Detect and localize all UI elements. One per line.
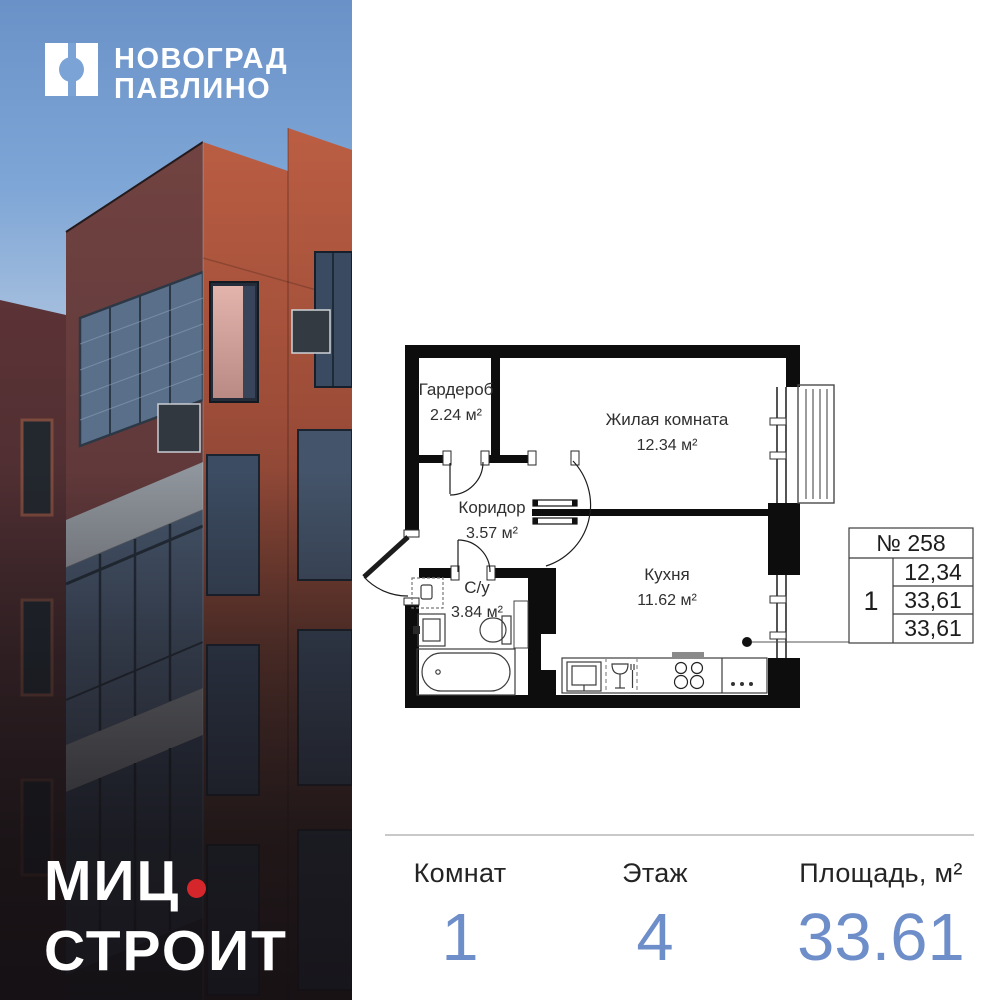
- room-area-wardrobe: 2.24 м²: [430, 407, 483, 424]
- floor-plan: Гардероб 2.24 м² Жилая комната 12.34 м² …: [0, 0, 1000, 1000]
- stat-rooms-label: Комнат: [380, 858, 540, 889]
- room-name-corridor: Коридор: [458, 498, 525, 517]
- stat-area: Площадь, м² 33.61: [788, 858, 974, 976]
- table-area-row1: 12,34: [904, 559, 962, 585]
- stat-floor-value: 4: [575, 899, 735, 976]
- table-rooms-count: 1: [863, 586, 878, 616]
- table-area-row3: 33,61: [904, 615, 962, 641]
- room-name-kitchen: Кухня: [644, 565, 690, 584]
- apartment-info-table: № 258 1 12,34 33,61 33,61: [849, 528, 973, 643]
- stat-area-label: Площадь, м²: [788, 858, 974, 889]
- stat-rooms-value: 1: [380, 899, 540, 976]
- stats-divider: [385, 834, 974, 836]
- kitchen-fixtures: [562, 652, 767, 693]
- window-kitchen: [777, 575, 786, 658]
- room-area-corridor: 3.57 м²: [466, 525, 519, 542]
- room-area-kitchen: 11.62 м²: [637, 592, 697, 609]
- window-living-room: [777, 387, 786, 503]
- room-name-living: Жилая комната: [606, 410, 729, 429]
- room-area-living: 12.34 м²: [637, 437, 698, 454]
- stat-floor: Этаж 4: [575, 858, 735, 976]
- room-name-bathroom: С/у: [464, 578, 490, 597]
- apartment-number: № 258: [876, 530, 945, 556]
- stat-area-value: 33.61: [788, 899, 974, 976]
- table-area-row2: 33,61: [904, 587, 962, 613]
- balcony: [798, 385, 834, 503]
- room-name-wardrobe: Гардероб: [419, 380, 494, 399]
- stat-rooms: Комнат 1: [380, 858, 540, 976]
- room-area-bathroom: 3.84 м²: [451, 604, 504, 621]
- stat-floor-label: Этаж: [575, 858, 735, 889]
